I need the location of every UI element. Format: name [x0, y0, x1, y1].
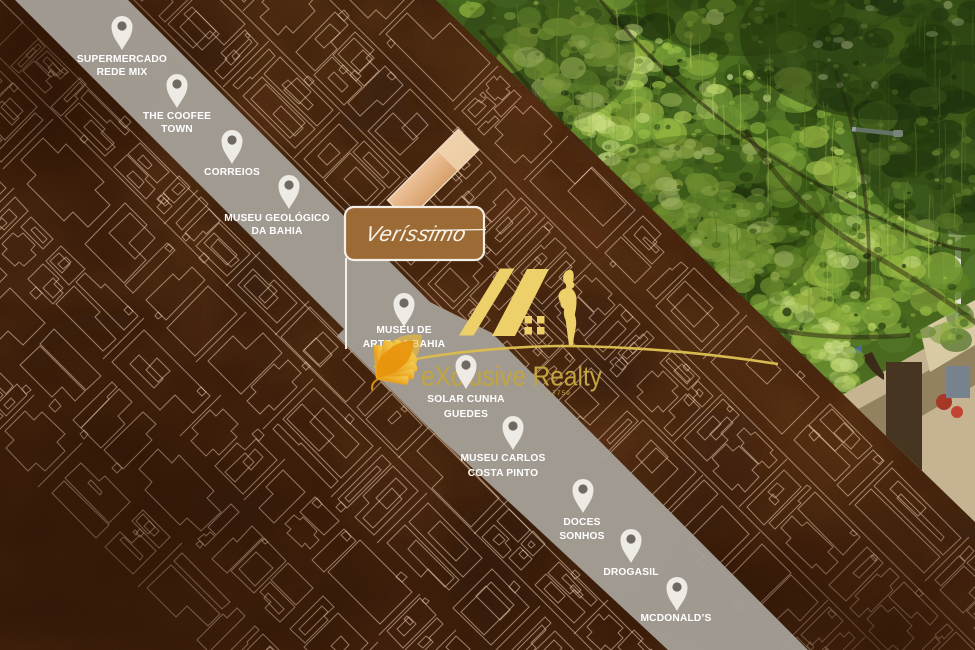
svg-text:DA BAHIA: DA BAHIA: [251, 226, 302, 237]
svg-text:REDE MIX: REDE MIX: [97, 67, 148, 78]
svg-text:MUSEU DE: MUSEU DE: [376, 325, 431, 336]
svg-text:THE COOFEE: THE COOFEE: [143, 111, 211, 122]
svg-text:SOLAR CUNHA: SOLAR CUNHA: [427, 394, 505, 405]
svg-text:MUSEU CARLOS: MUSEU CARLOS: [460, 453, 545, 464]
svg-text:eXclusive Realty: eXclusive Realty: [421, 361, 602, 392]
svg-text:TOWN: TOWN: [161, 124, 193, 135]
svg-text:J-7759: J-7759: [545, 390, 571, 397]
svg-text:COSTA PINTO: COSTA PINTO: [468, 468, 539, 479]
svg-text:MUSEU GEOLÓGICO: MUSEU GEOLÓGICO: [224, 211, 329, 224]
svg-text:MCDONALD’S: MCDONALD’S: [640, 613, 711, 624]
svg-text:DOCES: DOCES: [563, 517, 600, 528]
svg-text:GUEDES: GUEDES: [444, 409, 488, 420]
svg-text:DROGASIL: DROGASIL: [603, 567, 658, 578]
svg-text:CORREIOS: CORREIOS: [204, 167, 260, 178]
svg-text:Veríssimo: Veríssimo: [363, 221, 469, 246]
svg-text:SUPERMERCADO: SUPERMERCADO: [77, 54, 167, 65]
svg-text:SONHOS: SONHOS: [559, 531, 604, 542]
